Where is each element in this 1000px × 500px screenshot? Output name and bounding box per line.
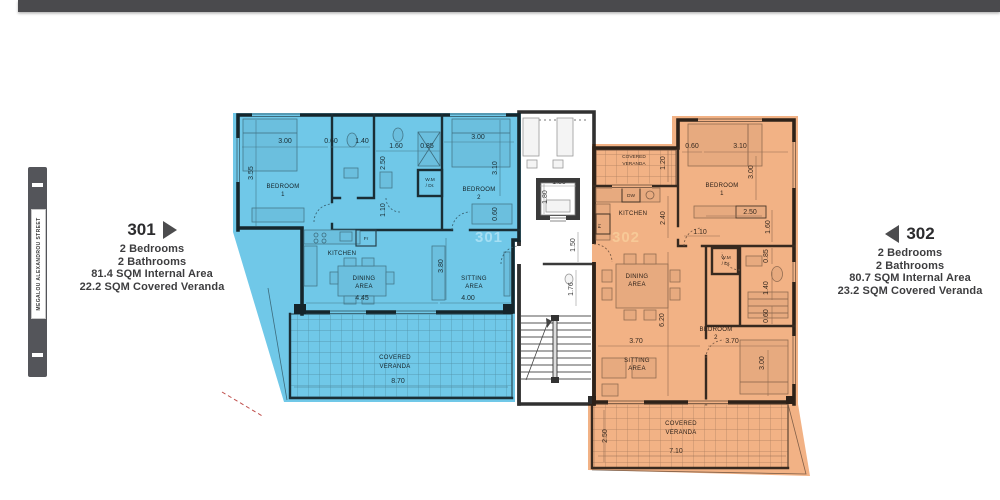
unit-301-number: 301 — [127, 220, 155, 240]
boundary-dashed-line — [222, 392, 264, 417]
unit-number-watermark: 302 — [612, 229, 640, 246]
unit-301-overlay — [233, 113, 521, 402]
unit-overlays — [233, 113, 810, 476]
dimension-label: 1.76 — [568, 282, 575, 296]
unit-number-watermark: 301 — [475, 229, 503, 246]
unit-302-veranda-area: 23.2 SQM Covered Veranda — [826, 285, 994, 298]
dimension-label: 1.80 — [542, 190, 549, 204]
unit-302-overlay — [588, 116, 810, 476]
unit-301-internal-area: 81.4 SQM Internal Area — [62, 268, 242, 281]
staircase — [521, 315, 591, 383]
arrow-right-icon — [163, 221, 177, 239]
unit-301-info: 301 2 Bedrooms 2 Bathrooms 81.4 SQM Inte… — [62, 220, 242, 293]
plan-watermarks: 301302 — [475, 229, 640, 246]
unit-302-bedrooms: 2 Bedrooms — [826, 247, 994, 260]
floorplan-page: MEGALOU ALEXANDROU STREET — [0, 0, 1000, 500]
dimension-label: 1.50 — [570, 238, 577, 252]
unit-301-veranda-area: 22.2 SQM Covered Veranda — [62, 281, 242, 294]
unit-302-number: 302 — [906, 224, 934, 244]
unit-302-bathrooms: 2 Bathrooms — [826, 260, 994, 273]
unit-302-internal-area: 80.7 SQM Internal Area — [826, 272, 994, 285]
unit-302-info: 302 2 Bedrooms 2 Bathrooms 80.7 SQM Inte… — [826, 224, 994, 297]
arrow-left-icon — [885, 225, 899, 243]
dimension-label: 1.80 — [552, 179, 566, 186]
unit-301-bedrooms: 2 Bedrooms — [62, 243, 242, 256]
unit-301-bathrooms: 2 Bathrooms — [62, 256, 242, 269]
